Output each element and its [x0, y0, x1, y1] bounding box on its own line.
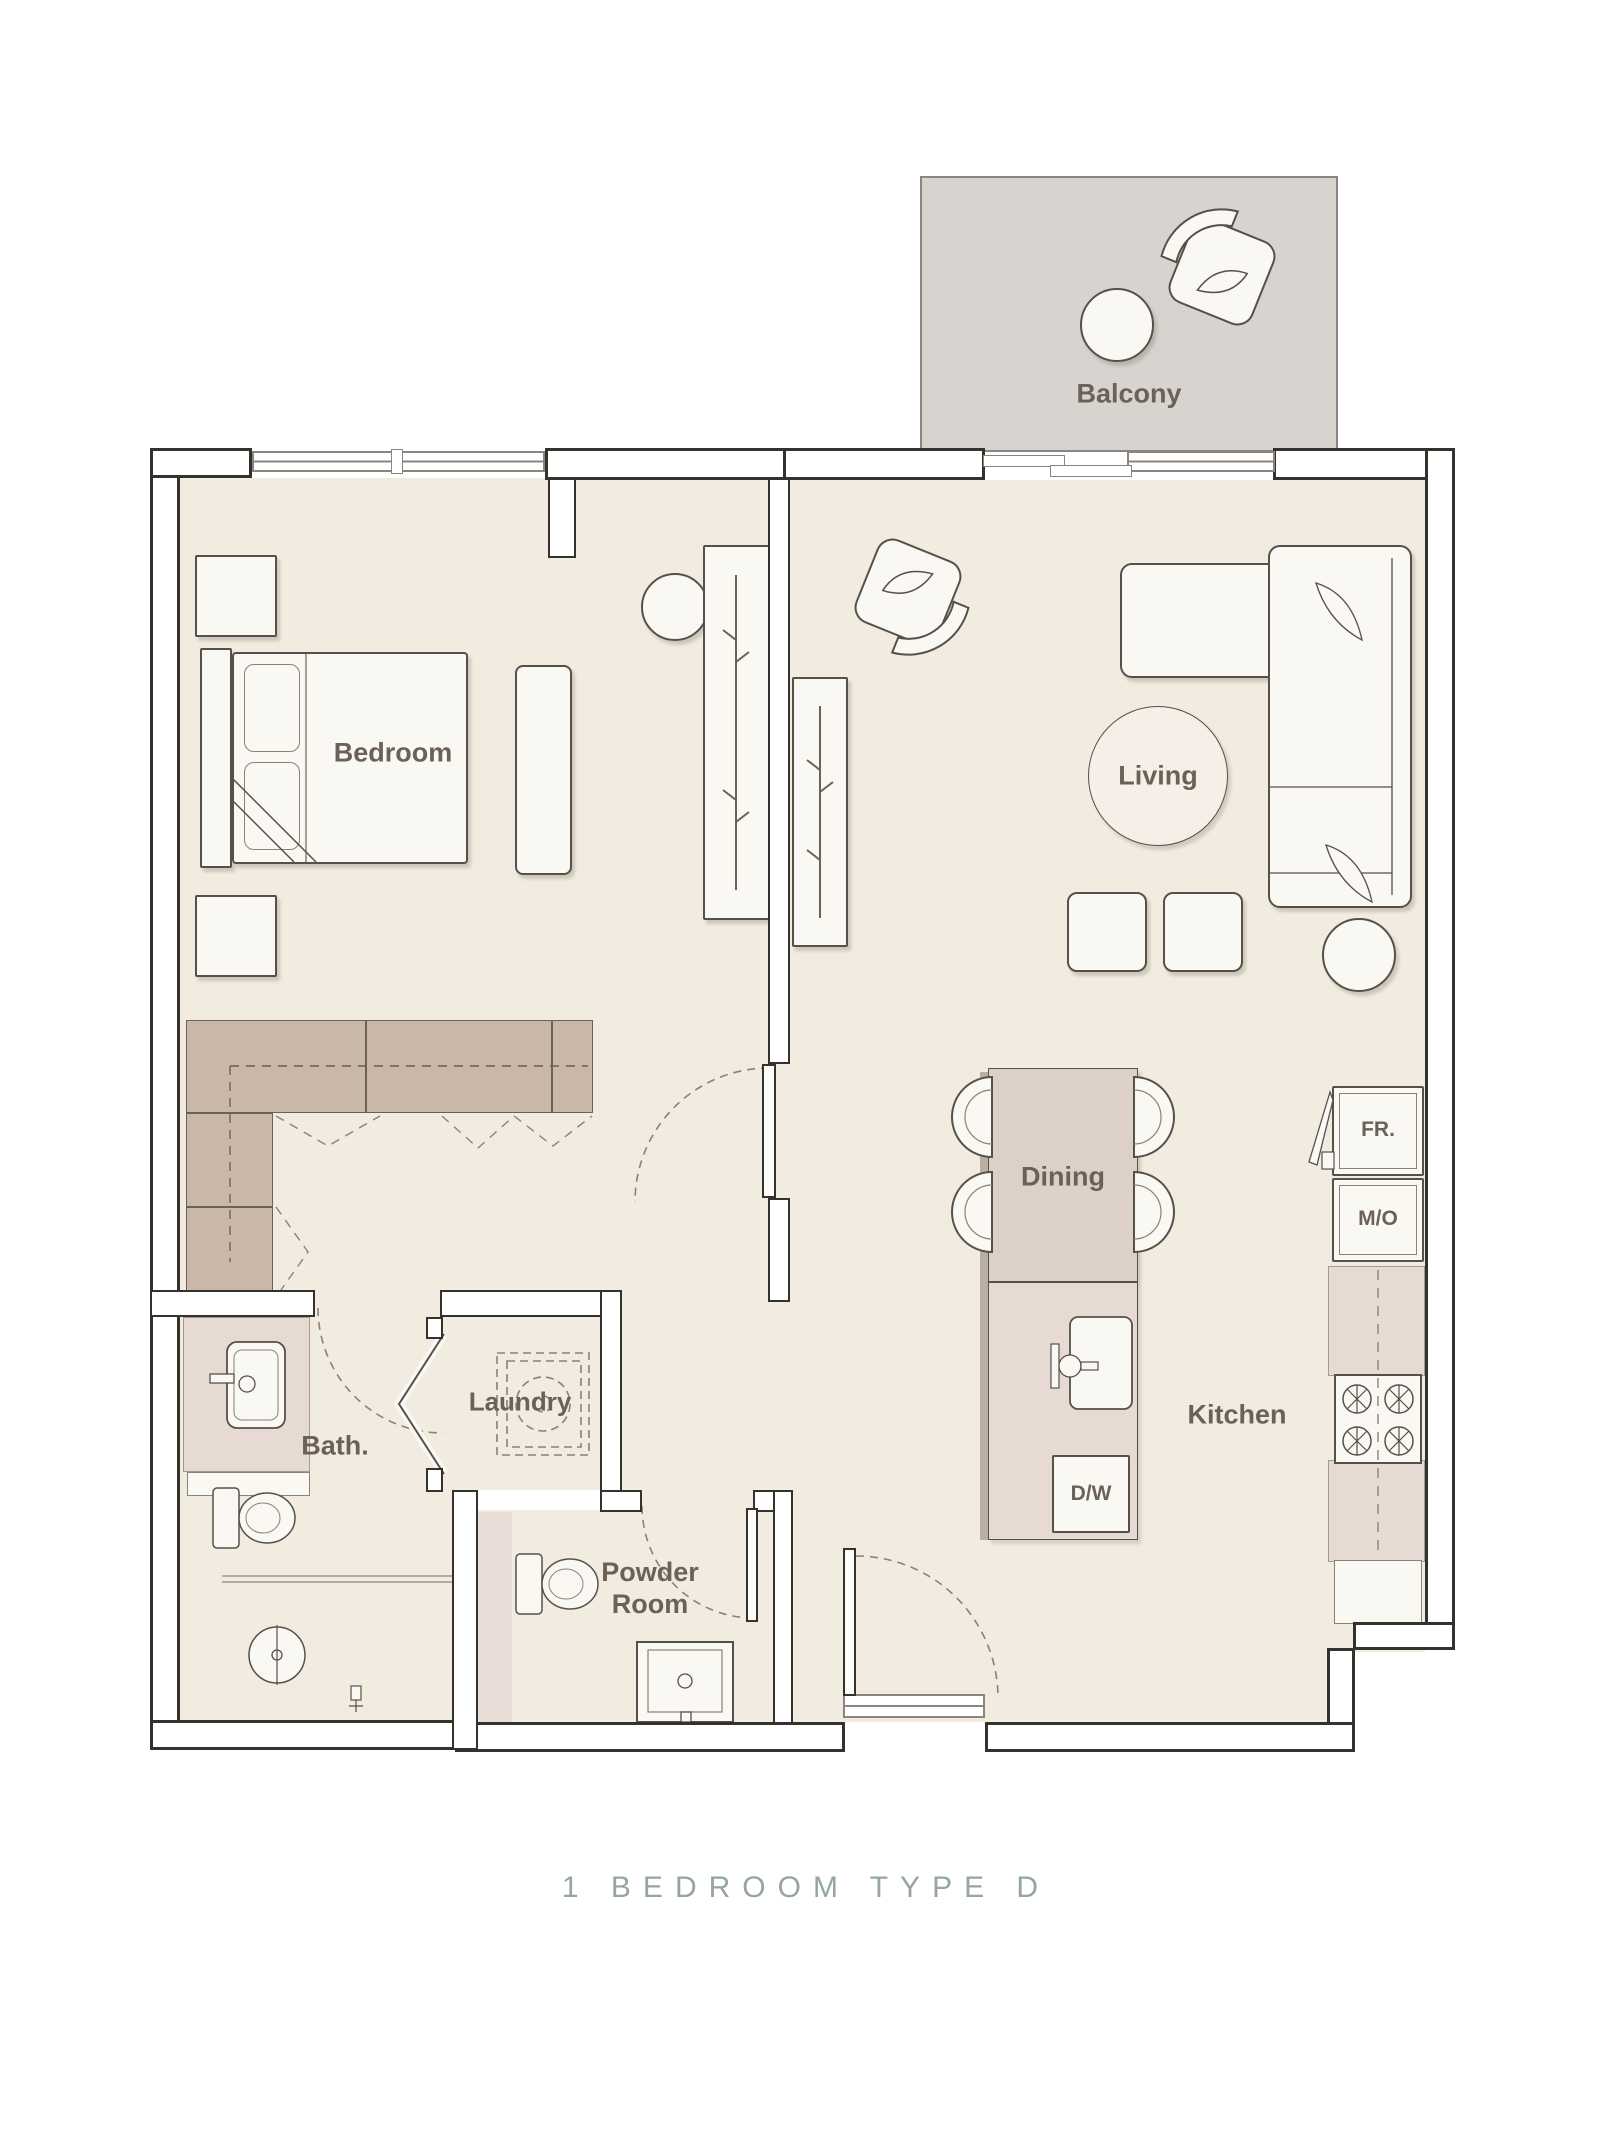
- coffee-table-2: [1163, 892, 1243, 972]
- wall-left: [150, 448, 180, 1750]
- room-label-living: Living: [1118, 761, 1198, 792]
- balcony-table: [1080, 288, 1154, 362]
- wall-bottom-left: [150, 1720, 460, 1750]
- bedroom-stool: [641, 573, 709, 641]
- nightstand-bottom: [195, 895, 277, 977]
- room-label-laundry: Laundry: [469, 1387, 572, 1418]
- powder-door-leaf: [746, 1508, 758, 1622]
- room-label-balcony: Balcony: [1076, 379, 1181, 410]
- bath-vanity-counter: [183, 1317, 310, 1472]
- appliance-label-microwave: M/O: [1358, 1207, 1398, 1231]
- entry-door-leaf: [843, 1548, 856, 1696]
- closet-cabinet-2: [366, 1020, 552, 1113]
- wall-top-nook: [545, 448, 790, 480]
- bedroom-door-leaf: [762, 1064, 776, 1198]
- bath-vanity-shelf: [187, 1472, 310, 1496]
- wall-bath-north-left: [150, 1290, 315, 1317]
- coffee-table-1: [1067, 892, 1147, 972]
- powder-finish-band: [478, 1512, 512, 1722]
- bed-pillow-2: [244, 762, 300, 850]
- wardrobe-bedroom: [703, 545, 770, 920]
- wall-powder-north-left: [600, 1490, 642, 1512]
- wall-laundry-north: [440, 1290, 622, 1317]
- floor-plan: Balcony Bedroom Living Dining Kitchen Ba…: [0, 0, 1608, 2137]
- room-label-kitchen: Kitchen: [1187, 1400, 1286, 1431]
- closet-cabinet-1: [186, 1020, 366, 1113]
- wall-nook-stub: [548, 478, 576, 558]
- bed-headboard: [200, 648, 232, 868]
- bed-pillow-1: [244, 664, 300, 752]
- closet-cabinet-5: [186, 1207, 273, 1297]
- room-label-bedroom: Bedroom: [334, 738, 453, 769]
- bedroom-window-mullion: [391, 449, 403, 474]
- balcony-slider-panel-2: [1050, 465, 1132, 477]
- wall-laundry-east: [600, 1290, 622, 1492]
- entry-threshold: [843, 1694, 985, 1718]
- vestibule-floor: [622, 1290, 790, 1515]
- wall-top-bedroom: [150, 448, 252, 478]
- wall-bottom-right: [985, 1722, 1355, 1752]
- room-label-bath: Bath.: [301, 1431, 369, 1462]
- side-table: [1322, 918, 1396, 992]
- closet-cabinet-3: [552, 1020, 593, 1113]
- nightstand-top: [195, 555, 277, 637]
- cooktop: [1334, 1374, 1422, 1464]
- living-window: [1127, 451, 1275, 472]
- appliance-label-dishwasher: D/W: [1071, 1482, 1112, 1506]
- wall-right: [1425, 448, 1455, 1650]
- bedroom-dresser: [515, 665, 572, 875]
- wall-divider-lower: [768, 1198, 790, 1302]
- wall-laundry-west-stub-top: [426, 1317, 443, 1339]
- wall-kitchen-bottom: [1353, 1622, 1455, 1650]
- plan-title: 1 BEDROOM TYPE D: [562, 1871, 1050, 1905]
- wall-laundry-west-stub-bottom: [426, 1468, 443, 1492]
- kitchen-counter-lower: [1328, 1460, 1425, 1562]
- wall-divider-upper: [768, 478, 790, 1064]
- sofa-body: [1268, 545, 1412, 908]
- kitchen-base-cabinet: [1334, 1560, 1422, 1624]
- room-label-powder: Powder Room: [570, 1556, 730, 1620]
- wall-top-living-left: [783, 448, 985, 480]
- room-label-dining: Dining: [1021, 1162, 1105, 1193]
- wall-bottom-middle: [455, 1722, 845, 1752]
- wall-powder-west: [452, 1490, 478, 1750]
- kitchen-counter-upper: [1328, 1266, 1425, 1376]
- closet-cabinet-4: [186, 1113, 273, 1207]
- bath-door-gap-floor: [315, 1290, 440, 1320]
- appliance-label-fridge: FR.: [1361, 1118, 1395, 1142]
- wardrobe-living: [792, 677, 848, 947]
- wall-powder-east: [773, 1490, 793, 1724]
